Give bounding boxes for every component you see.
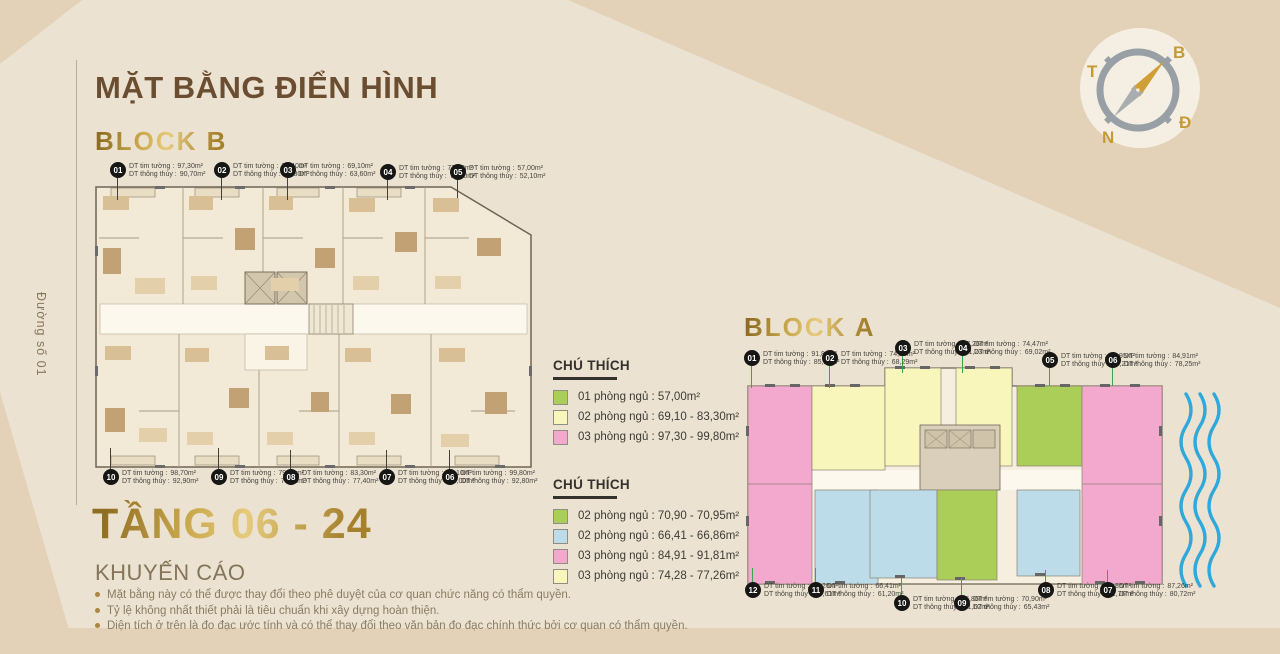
legend-swatch-pink: [553, 430, 568, 445]
unit-number-badge: 02: [822, 350, 838, 366]
unit-number-badge: 08: [283, 469, 299, 485]
leader-line: [829, 366, 830, 388]
unit-number-badge: 05: [1042, 352, 1058, 368]
unit-label-b-03: 03 DT tim tường :69,10m² DT thông thủy :…: [280, 162, 375, 179]
legend-block-b: CHÚ THÍCH 01 phòng ngủ : 57,00m² 02 phòn…: [553, 358, 753, 450]
unit-label-a-09: 09 DT tim tường :70,90m² DT thông thủy :…: [954, 595, 1049, 612]
unit-number-badge: 02: [214, 162, 230, 178]
street-label: Đường số 01: [34, 292, 48, 377]
legend-swatch-yellow: [553, 410, 568, 425]
legend-underline: [553, 377, 617, 380]
leader-line: [815, 568, 816, 582]
leader-line: [457, 180, 458, 198]
leader-line: [287, 178, 288, 200]
legend-swatch-pink: [553, 549, 568, 564]
leader-line: [221, 178, 222, 200]
page-title: MẶT BẰNG ĐIỂN HÌNH: [95, 70, 438, 106]
legend-title: CHÚ THÍCH: [553, 358, 753, 373]
leader-line: [387, 180, 388, 200]
street-line: [76, 60, 77, 505]
block-b-title: BLOCK B: [95, 126, 227, 157]
legend-item: 03 phòng ngủ : 97,30 - 99,80m²: [553, 430, 753, 445]
unit-number-badge: 10: [894, 595, 910, 611]
unit-label-b-10: 10 DT tim tường :98,70m² DT thông thủy :…: [103, 469, 198, 486]
unit-number-badge: 04: [380, 164, 396, 180]
unit-number-badge: 10: [103, 469, 119, 485]
unit-label-a-06: 06 DT tim tường :84,91m² DT thông thủy :…: [1105, 352, 1200, 369]
legend-swatch-blue: [553, 529, 568, 544]
leader-line: [449, 450, 450, 469]
unit-label-a-07: 07 DT tim tường :87,26m² DT thông thủy :…: [1100, 582, 1195, 599]
block-b-floorplan: [95, 186, 532, 468]
floorplan-poster: B Đ N T MẶT BẰNG ĐIỂN HÌNH BLOCK B BLOCK…: [0, 0, 1280, 654]
legend-swatch-green: [553, 390, 568, 405]
block-a-floorplan: [745, 366, 1165, 586]
block-a-title: BLOCK A: [744, 312, 875, 343]
bullet-dot-icon: [95, 608, 100, 613]
floor-range-label: TẦNG 06 - 24: [92, 500, 372, 549]
unit-label-a-11: 11 DT tim tường :66,41m² DT thông thủy :…: [808, 582, 903, 599]
unit-number-badge: 05: [450, 164, 466, 180]
disclaimer-bullet: Tỷ lệ không nhất thiết phải là tiêu chuẩ…: [95, 605, 688, 617]
leader-line: [1107, 570, 1108, 582]
compass-east-label: Đ: [1179, 113, 1191, 132]
legend-title: CHÚ THÍCH: [553, 477, 753, 492]
bullet-dot-icon: [95, 623, 100, 628]
disclaimer-bullet: Diện tích ở trên là đo đạc ước tính và c…: [95, 620, 688, 632]
leader-line: [290, 450, 291, 469]
legend-block-a: CHÚ THÍCH 02 phòng ngủ : 70,90 - 70,95m²…: [553, 477, 753, 589]
compass-south-label: N: [1102, 128, 1114, 147]
unit-number-badge: 11: [808, 582, 824, 598]
unit-label-b-08: 08 DT tim tường :83,30m² DT thông thủy :…: [283, 469, 378, 486]
legend-underline: [553, 496, 617, 499]
legend-item: 01 phòng ngủ : 57,00m²: [553, 390, 753, 405]
legend-item: 03 phòng ngủ : 74,28 - 77,26m²: [553, 569, 753, 584]
legend-item: 03 phòng ngủ : 84,91 - 91,81m²: [553, 549, 753, 564]
compass-icon: B Đ N T: [1076, 24, 1204, 152]
unit-number-badge: 06: [442, 469, 458, 485]
unit-number-badge: 07: [1100, 582, 1116, 598]
unit-label-a-04: 04 DT tim tường :74,47m² DT thông thủy :…: [955, 340, 1050, 357]
unit-label-b-05: 05 DT tim tường :57,00m² DT thông thủy :…: [450, 164, 545, 181]
leader-line: [218, 448, 219, 469]
disclaimer-title: KHUYẾN CÁO: [95, 560, 245, 586]
unit-label-b-01: 01 DT tim tường :97,30m² DT thông thủy :…: [110, 162, 205, 179]
legend-swatch-yellow: [553, 569, 568, 584]
unit-number-badge: 07: [379, 469, 395, 485]
unit-number-badge: 09: [211, 469, 227, 485]
disclaimer-bullet: Mặt bằng này có thể được thay đổi theo p…: [95, 589, 688, 601]
legend-item: 02 phòng ngủ : 69,10 - 83,30m²: [553, 410, 753, 425]
leader-line: [1112, 368, 1113, 386]
leader-line: [961, 578, 962, 595]
unit-number-badge: 03: [280, 162, 296, 178]
unit-number-badge: 06: [1105, 352, 1121, 368]
leader-line: [386, 450, 387, 469]
compass-west-label: T: [1087, 62, 1098, 81]
leader-line: [1049, 368, 1050, 386]
disclaimer-list: Mặt bằng này có thể được thay đổi theo p…: [95, 589, 688, 636]
water-waves-icon: [1178, 390, 1224, 592]
unit-number-badge: 09: [954, 595, 970, 611]
unit-number-badge: 03: [895, 340, 911, 356]
leader-line: [110, 448, 111, 469]
leader-line: [962, 356, 963, 373]
legend-swatch-green: [553, 509, 568, 524]
unit-number-badge: 08: [1038, 582, 1054, 598]
legend-item: 02 phòng ngủ : 70,90 - 70,95m²: [553, 509, 753, 524]
unit-number-badge: 01: [110, 162, 126, 178]
unit-label-b-06: 06 DT tim tường :99,80m² DT thông thủy :…: [442, 469, 537, 486]
leader-line: [1045, 570, 1046, 582]
bullet-dot-icon: [95, 592, 100, 597]
unit-number-badge: 04: [955, 340, 971, 356]
legend-item: 02 phòng ngủ : 66,41 - 66,86m²: [553, 529, 753, 544]
leader-line: [117, 178, 118, 200]
compass-north-label: B: [1173, 43, 1185, 62]
